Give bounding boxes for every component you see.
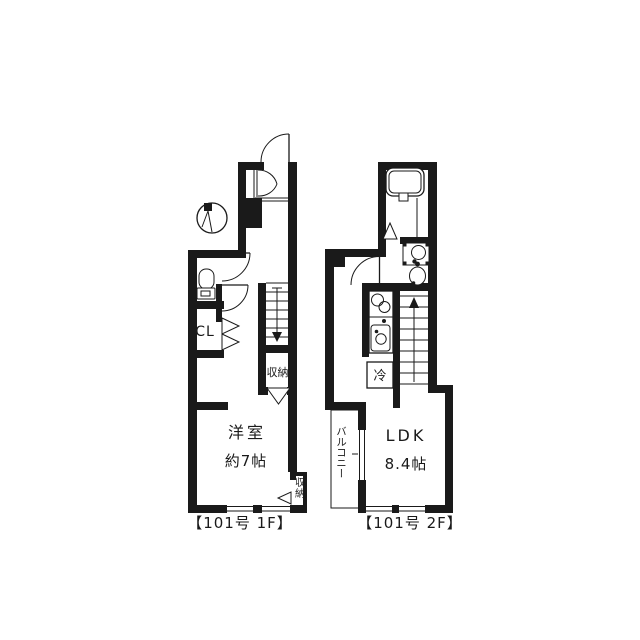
closet-door-icon (222, 318, 239, 350)
entry-closet-icon (253, 167, 288, 201)
washbasin-icon (403, 243, 429, 265)
room-size-2f: 8.4帖 (385, 455, 428, 473)
floorplan-page: CL 収納 洋室 約7帖 収納 【101号 1F】 (0, 0, 640, 640)
entrance-door-icon (261, 134, 289, 162)
fridge-label: 冷 (373, 369, 386, 384)
room-name-2f: LDK (386, 426, 427, 445)
caption-1f: 【101号 1F】 (187, 514, 293, 532)
kitchen-icon (369, 291, 393, 353)
floorplan-1f: CL 収納 洋室 約7帖 収納 【101号 1F】 (187, 134, 307, 532)
window-2f-balcony (352, 430, 367, 480)
stairs-1f (266, 283, 288, 342)
hall-door-icon (222, 285, 248, 311)
storage-door-icon-1f (267, 388, 290, 404)
storage-corner-label: 収納 (293, 477, 305, 499)
closet-label-1f: CL (195, 324, 215, 340)
floorplan-canvas: CL 収納 洋室 約7帖 収納 【101号 1F】 (0, 0, 640, 640)
caption-2f: 【101号 2F】 (357, 514, 463, 532)
stairs-down-arrow-icon (272, 288, 282, 342)
storage-under-stairs-label: 収納 (267, 366, 289, 379)
fridge-icon: 冷 (367, 362, 393, 388)
water-heater-icon (197, 203, 227, 233)
washroom-door-icon (351, 257, 380, 286)
room-name-1f: 洋室 (228, 423, 266, 442)
corner-storage-door-icon (278, 492, 291, 504)
toilet-icon-1f (197, 269, 215, 299)
room-size-1f: 約7帖 (225, 452, 268, 470)
balcony-label: バルコニー (335, 426, 347, 479)
floorplan-2f: 冷 LDK 8.4帖 バルコニー 【101号 2F】 (325, 162, 463, 532)
stairs-2f (400, 296, 428, 384)
